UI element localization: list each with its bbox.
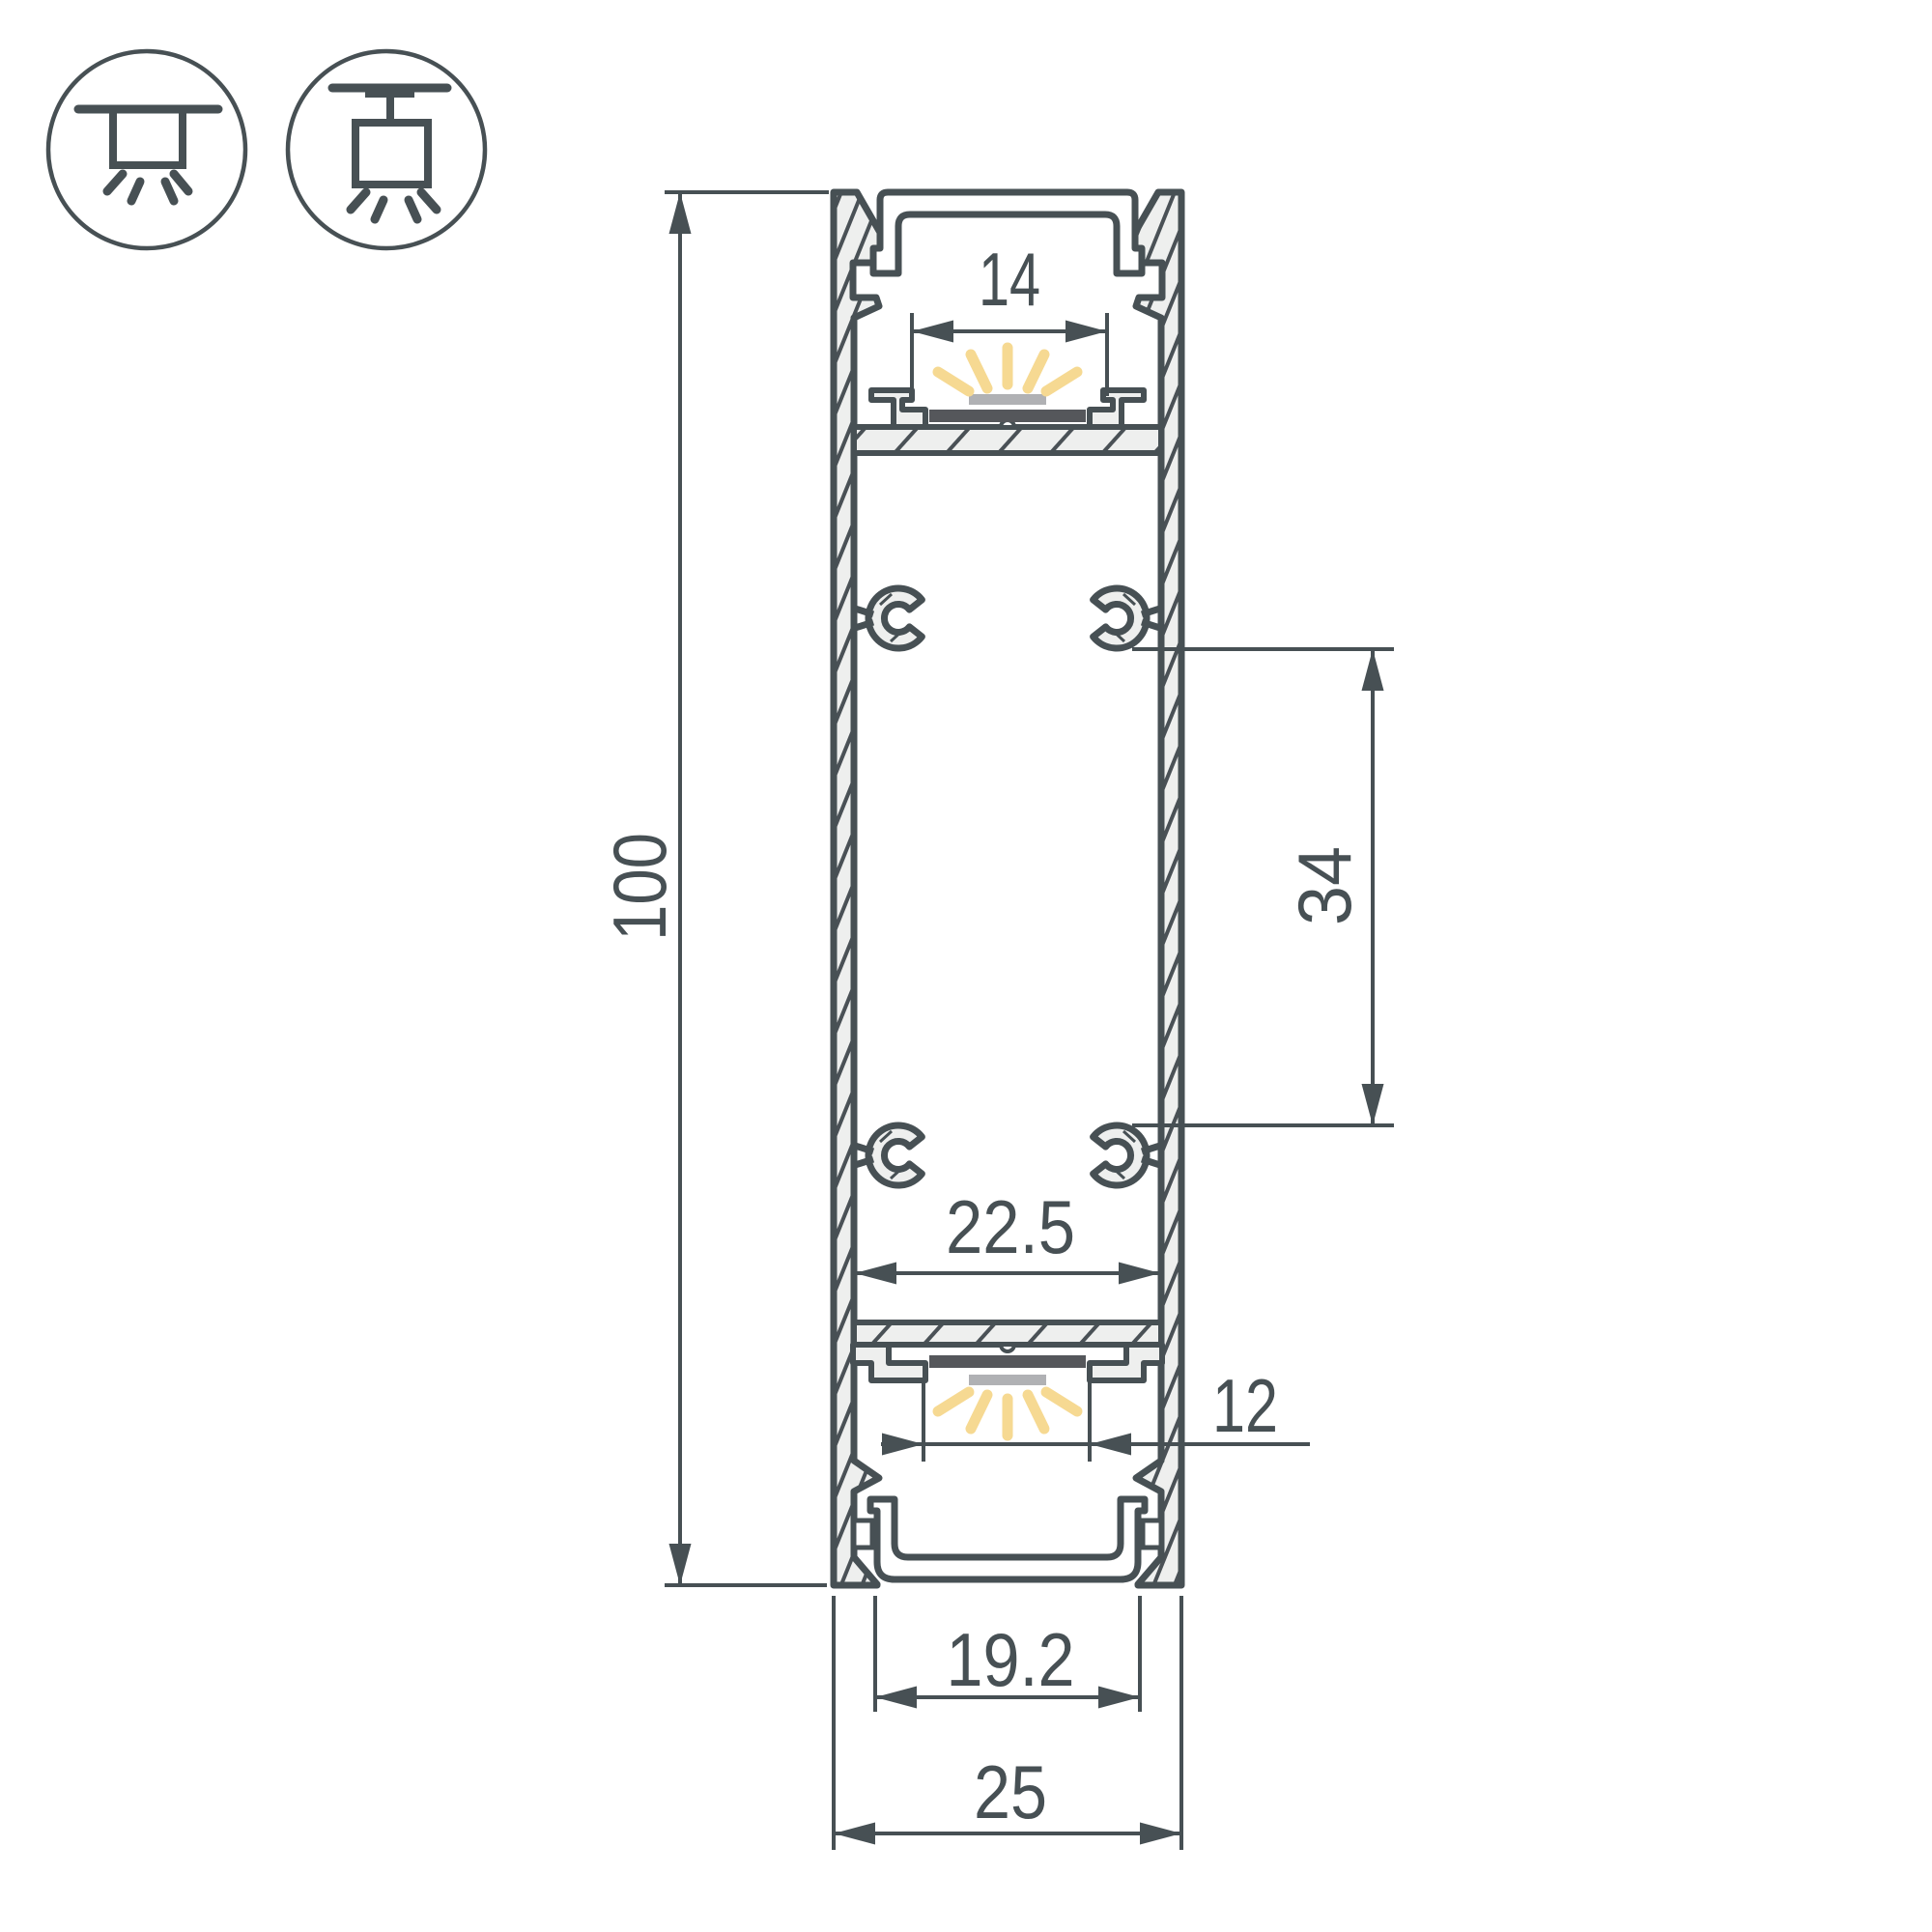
svg-text:25: 25 bbox=[974, 1749, 1047, 1834]
svg-text:22.5: 22.5 bbox=[946, 1184, 1075, 1269]
svg-text:100: 100 bbox=[597, 833, 682, 941]
svg-text:34: 34 bbox=[1282, 846, 1367, 925]
svg-text:12: 12 bbox=[1212, 1363, 1278, 1448]
svg-text:19.2: 19.2 bbox=[947, 1617, 1075, 1702]
svg-text:14: 14 bbox=[979, 237, 1040, 322]
